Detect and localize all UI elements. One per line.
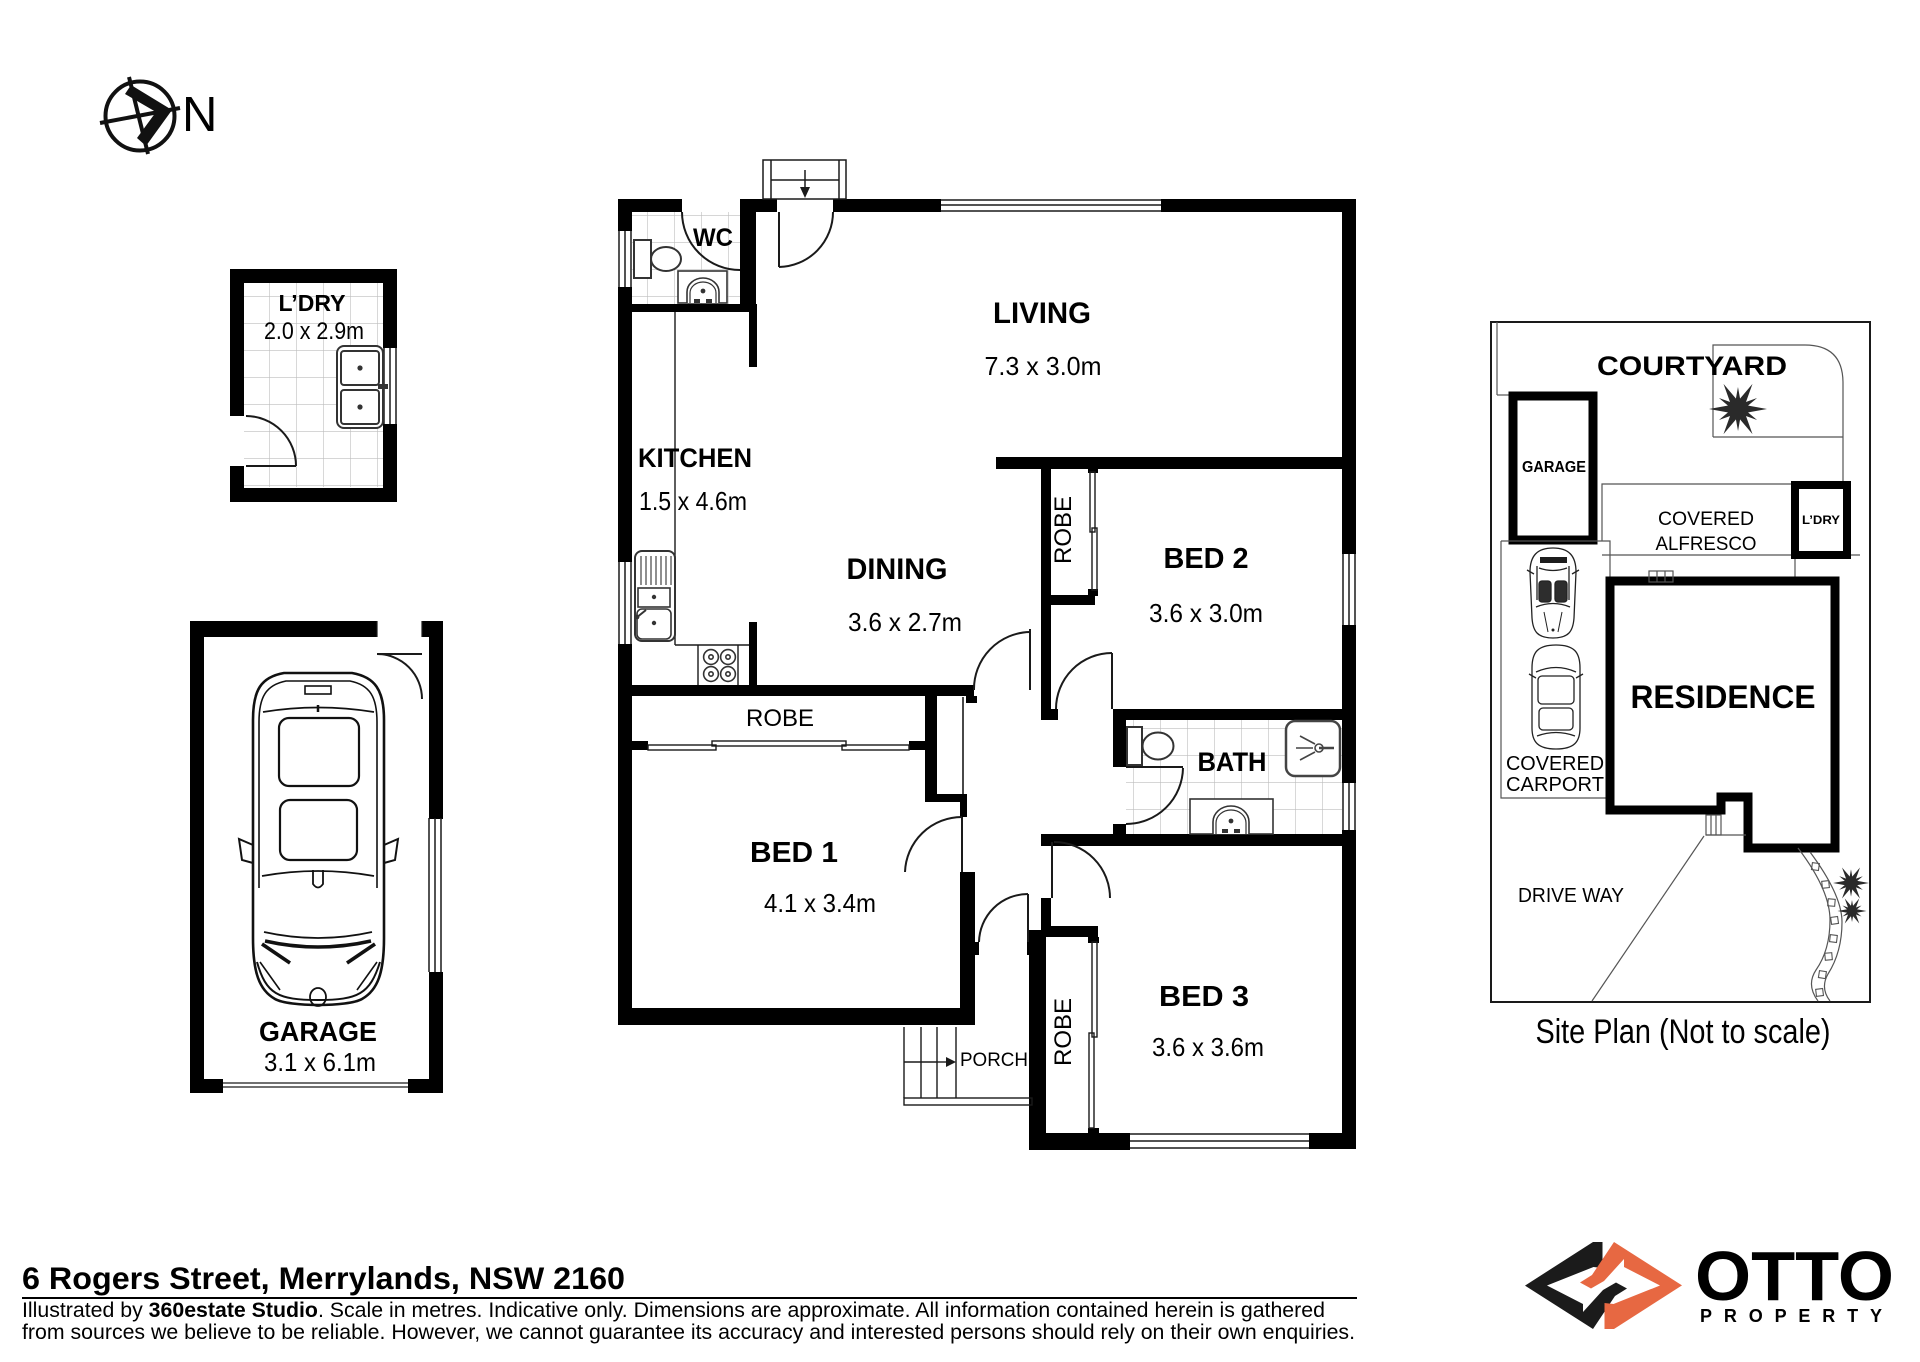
svg-text:L’DRY: L’DRY — [1802, 515, 1840, 527]
svg-text:COVERED: COVERED — [1658, 508, 1754, 530]
svg-text:L’DRY: L’DRY — [279, 290, 346, 316]
svg-text:PORCH: PORCH — [960, 1049, 1028, 1071]
svg-text:GARAGE: GARAGE — [1522, 459, 1586, 476]
svg-text:DRIVE WAY: DRIVE WAY — [1518, 884, 1624, 907]
svg-text:3.6 x 3.6m: 3.6 x 3.6m — [1152, 1032, 1264, 1062]
svg-text:LIVING: LIVING — [993, 297, 1091, 330]
svg-text:BED 1: BED 1 — [750, 837, 838, 869]
svg-text:ROBE: ROBE — [1050, 496, 1077, 564]
svg-text:6 Rogers Street, Merrylands, N: 6 Rogers Street, Merrylands, NSW 2160 — [22, 1260, 625, 1296]
svg-text:from sources we believe to be: from sources we believe to be reliable. … — [22, 1321, 1355, 1344]
svg-text:COURTYARD: COURTYARD — [1597, 351, 1787, 381]
svg-text:KITCHEN: KITCHEN — [638, 443, 752, 473]
svg-text:OTTO: OTTO — [1695, 1237, 1894, 1315]
svg-text:2.0 x 2.9m: 2.0 x 2.9m — [264, 318, 364, 345]
svg-text:DINING: DINING — [847, 553, 948, 586]
svg-text:Illustrated by 360estate Studi: Illustrated by 360estate Studio. Scale i… — [22, 1298, 1325, 1322]
svg-text:WC: WC — [693, 224, 733, 252]
svg-text:3.1 x 6.1m: 3.1 x 6.1m — [264, 1047, 376, 1077]
svg-text:4.1 x 3.4m: 4.1 x 3.4m — [764, 888, 876, 918]
svg-text:N: N — [182, 88, 217, 142]
svg-text:7.3 x 3.0m: 7.3 x 3.0m — [985, 351, 1102, 381]
svg-text:Site Plan (Not to scale): Site Plan (Not to scale) — [1536, 1013, 1831, 1051]
svg-text:CARPORT: CARPORT — [1506, 774, 1604, 796]
svg-text:3.6 x 3.0m: 3.6 x 3.0m — [1149, 598, 1263, 628]
svg-text:COVERED: COVERED — [1506, 753, 1604, 775]
svg-text:BATH: BATH — [1198, 747, 1267, 777]
svg-text:ROBE: ROBE — [1050, 998, 1077, 1066]
svg-text:BED 3: BED 3 — [1159, 981, 1249, 1013]
svg-text:1.5 x 4.6m: 1.5 x 4.6m — [639, 486, 747, 516]
svg-text:ROBE: ROBE — [746, 705, 814, 732]
svg-text:RESIDENCE: RESIDENCE — [1631, 679, 1816, 715]
svg-text:BED 2: BED 2 — [1164, 543, 1249, 575]
svg-text:ALFRESCO: ALFRESCO — [1656, 533, 1757, 555]
svg-text:3.6 x 2.7m: 3.6 x 2.7m — [848, 607, 962, 637]
svg-text:GARAGE: GARAGE — [259, 1016, 377, 1047]
